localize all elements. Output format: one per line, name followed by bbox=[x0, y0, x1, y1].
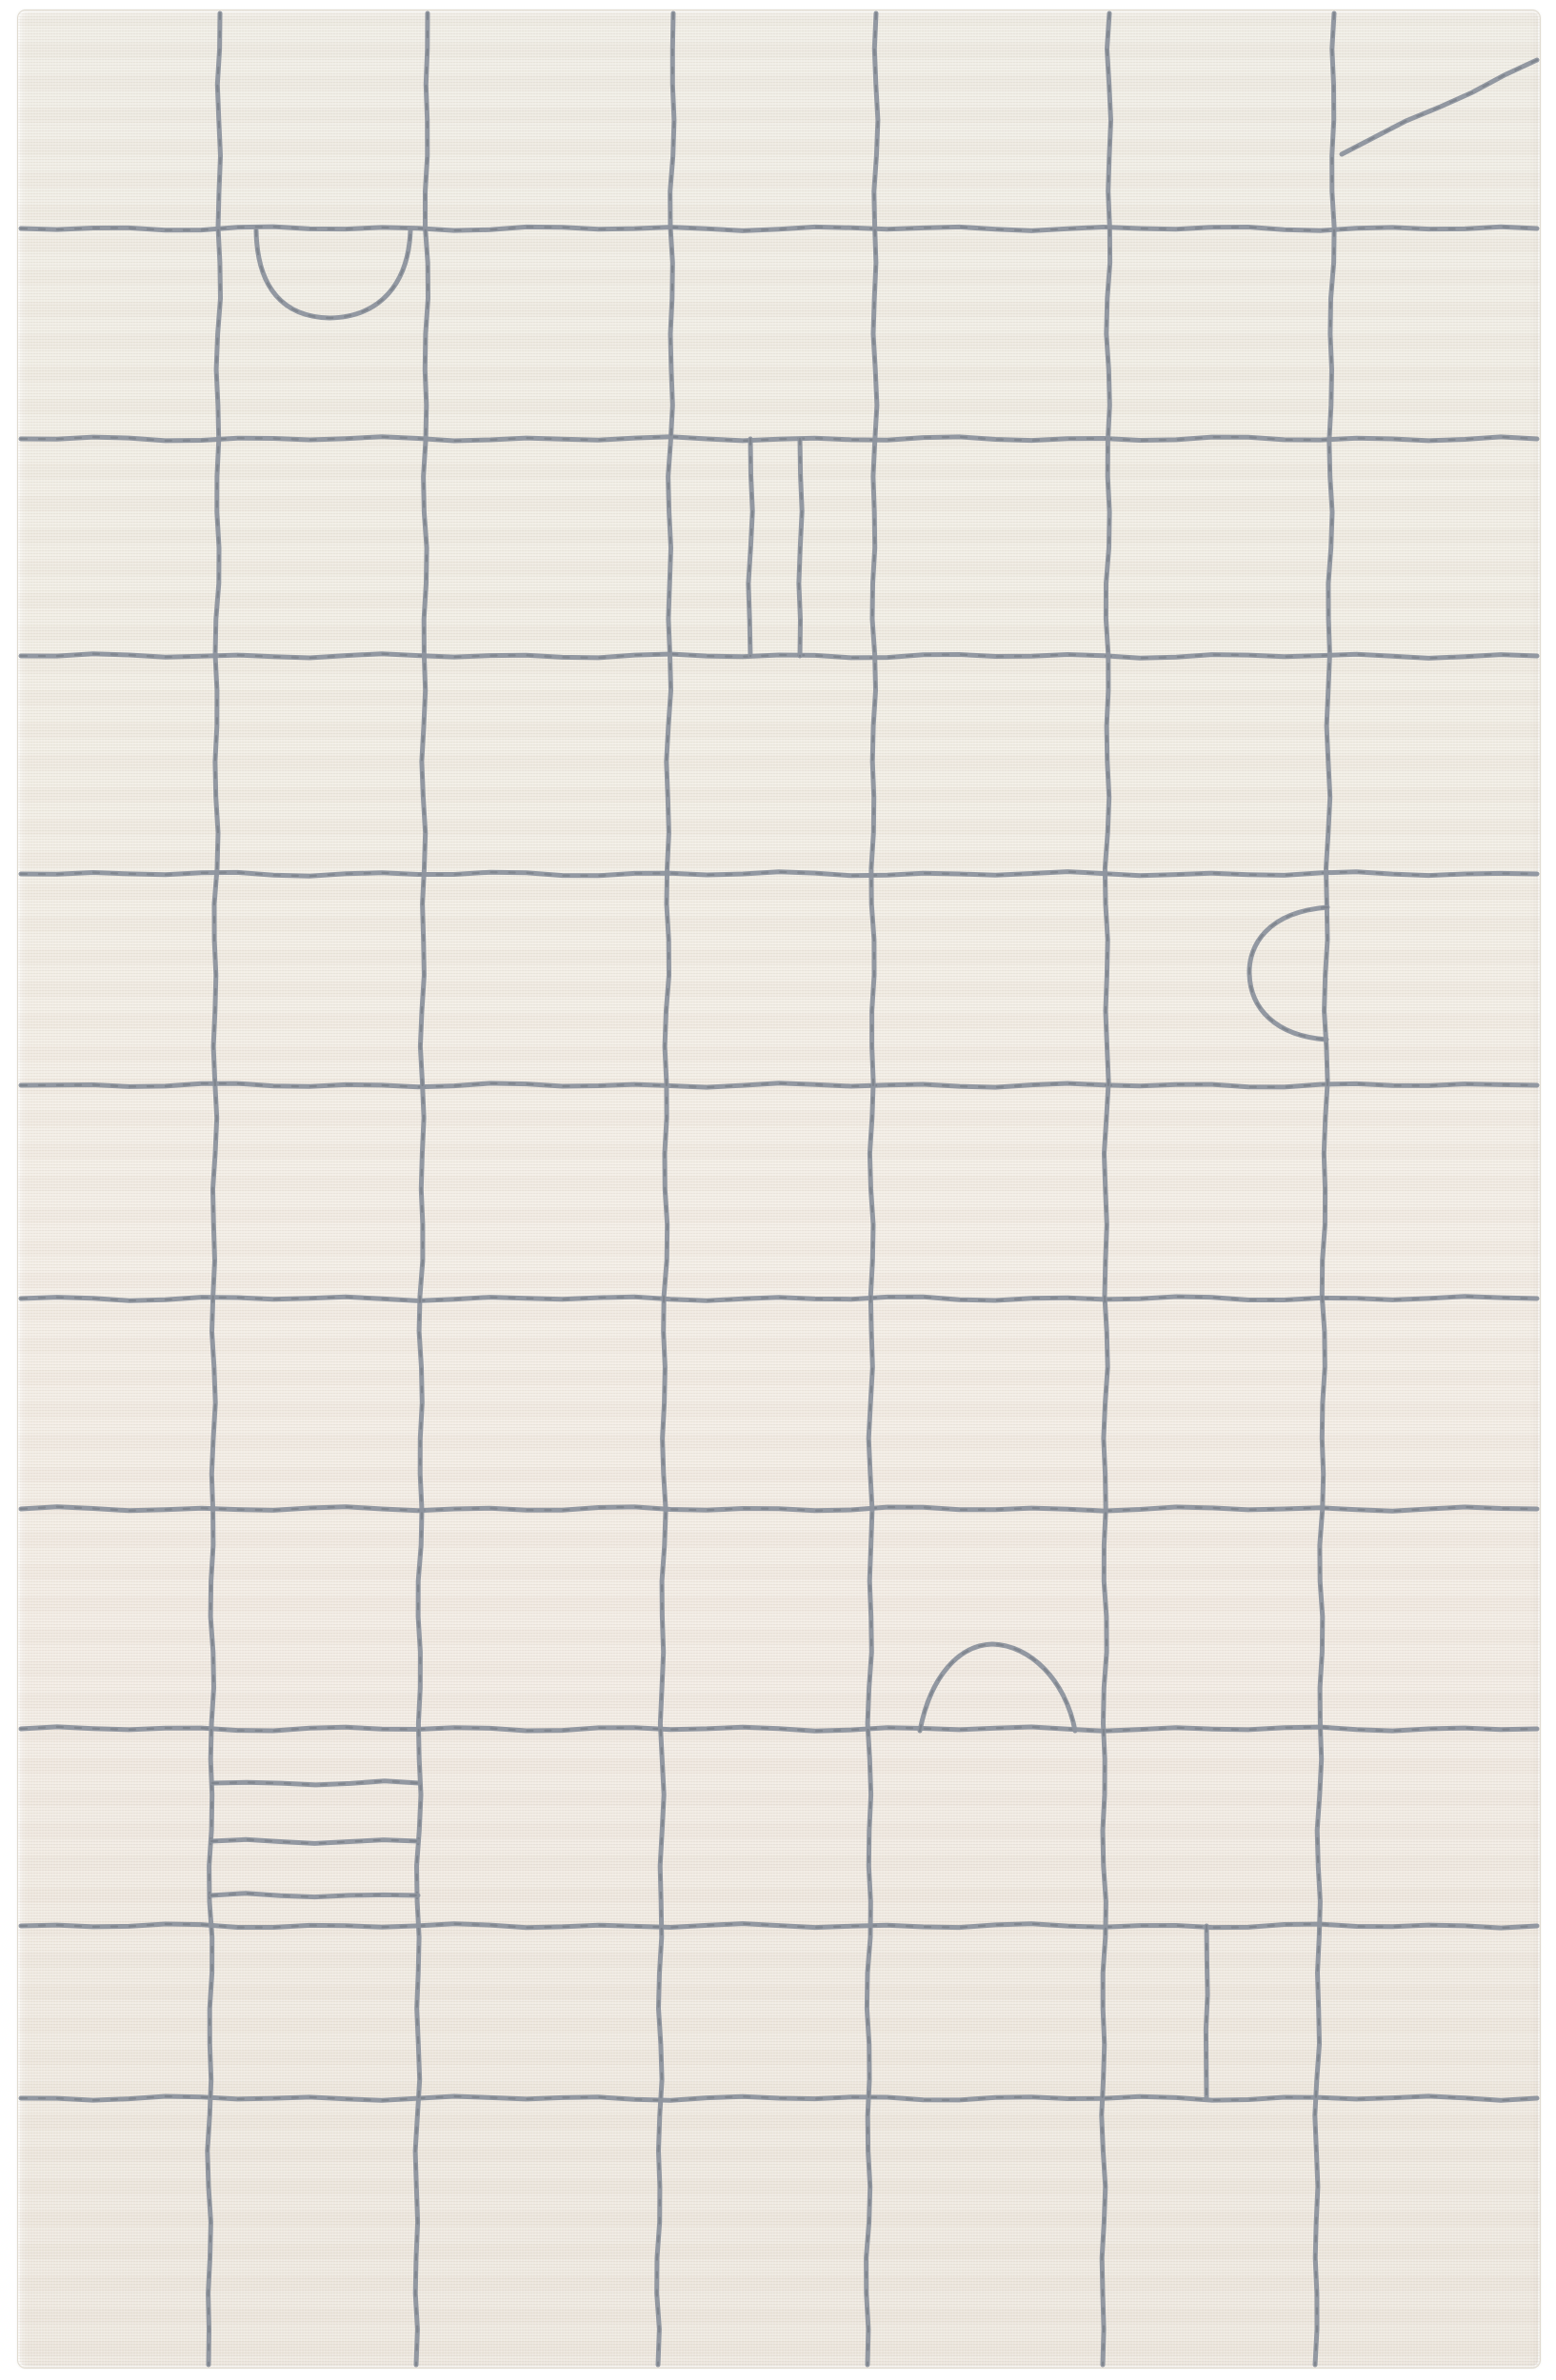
double-tick-right bbox=[799, 439, 802, 656]
right-half-disc bbox=[1249, 907, 1327, 1040]
grid-line-h7 bbox=[21, 1507, 1537, 1512]
grid-line-v6 bbox=[1315, 13, 1334, 2365]
grid-line-h6 bbox=[21, 1297, 1537, 1301]
double-tick-left bbox=[748, 439, 752, 656]
grid-line-v3 bbox=[657, 13, 674, 2365]
grid-line-v5 bbox=[1102, 13, 1111, 2365]
grid-line-v1 bbox=[208, 13, 221, 2365]
photo-backdrop bbox=[0, 0, 1556, 2380]
grid-line-h2 bbox=[21, 437, 1537, 441]
top-right-diagonal bbox=[1342, 60, 1537, 154]
grid-line-h8 bbox=[21, 1727, 1537, 1731]
bottom-right-tick bbox=[1206, 1926, 1207, 2098]
ladder-rung-3 bbox=[211, 1894, 418, 1897]
grid-line-h4 bbox=[21, 872, 1537, 877]
center-arch bbox=[920, 1644, 1075, 1731]
grid-line-h9 bbox=[21, 1924, 1537, 1929]
rug bbox=[17, 10, 1541, 2369]
grid-line-h5 bbox=[21, 1083, 1537, 1087]
grid-line-v2 bbox=[415, 13, 428, 2365]
ladder-rung-1 bbox=[212, 1781, 419, 1785]
grid-line-v4 bbox=[867, 13, 878, 2365]
rug-pattern-svg bbox=[18, 10, 1540, 2368]
grid-line-h3 bbox=[21, 654, 1537, 659]
grid-line-h10 bbox=[21, 2096, 1537, 2100]
top-left-hanging-arch bbox=[256, 230, 410, 318]
ladder-rung-2 bbox=[211, 1839, 418, 1843]
grid-line-h1 bbox=[21, 227, 1537, 230]
